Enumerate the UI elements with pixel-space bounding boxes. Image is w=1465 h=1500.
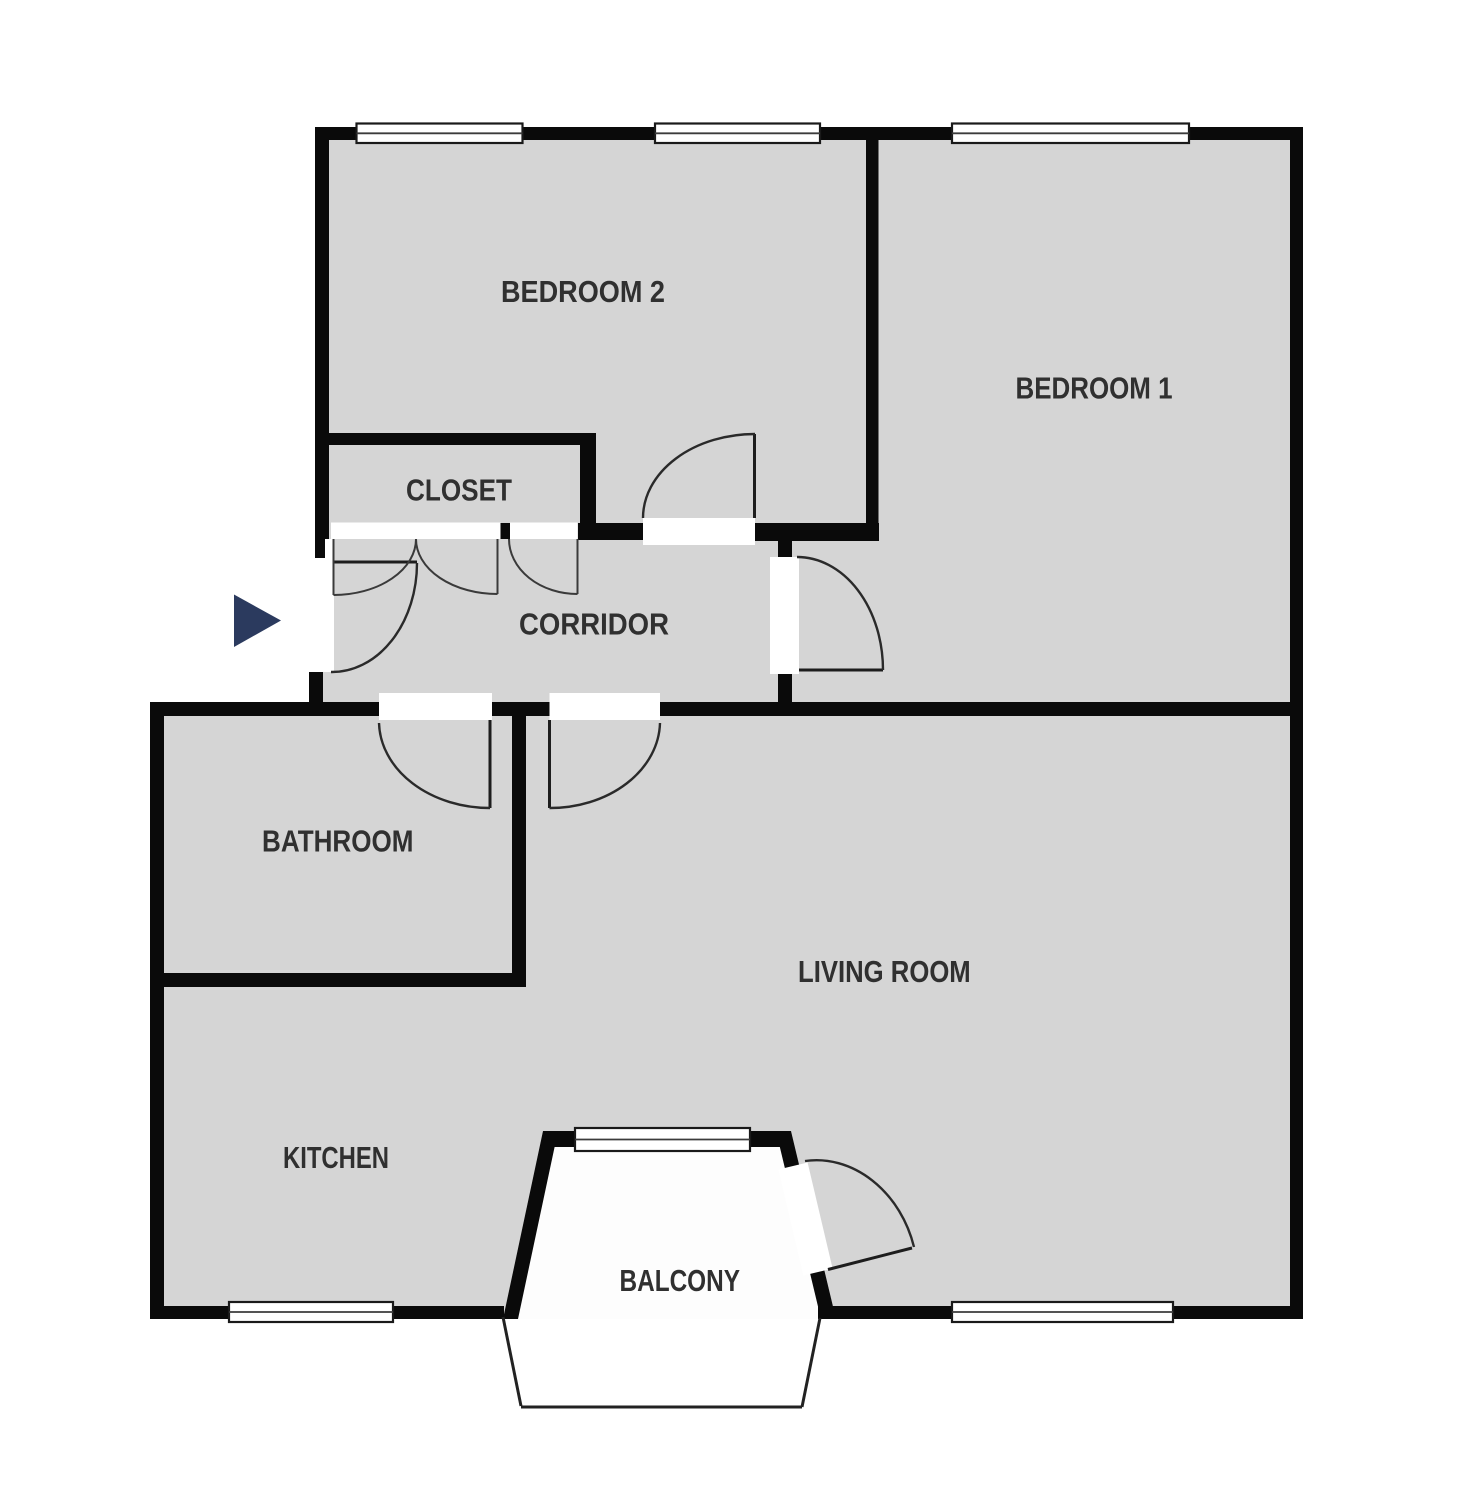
svg-text:CLOSET: CLOSET — [406, 473, 512, 508]
svg-text:BEDROOM 1: BEDROOM 1 — [1016, 371, 1173, 406]
svg-text:LIVING ROOM: LIVING ROOM — [798, 954, 971, 989]
svg-text:BATHROOM: BATHROOM — [262, 824, 414, 859]
svg-text:BEDROOM 2: BEDROOM 2 — [501, 274, 665, 309]
svg-text:KITCHEN: KITCHEN — [283, 1140, 389, 1175]
svg-text:BALCONY: BALCONY — [620, 1263, 741, 1298]
svg-text:CORRIDOR: CORRIDOR — [519, 607, 669, 642]
